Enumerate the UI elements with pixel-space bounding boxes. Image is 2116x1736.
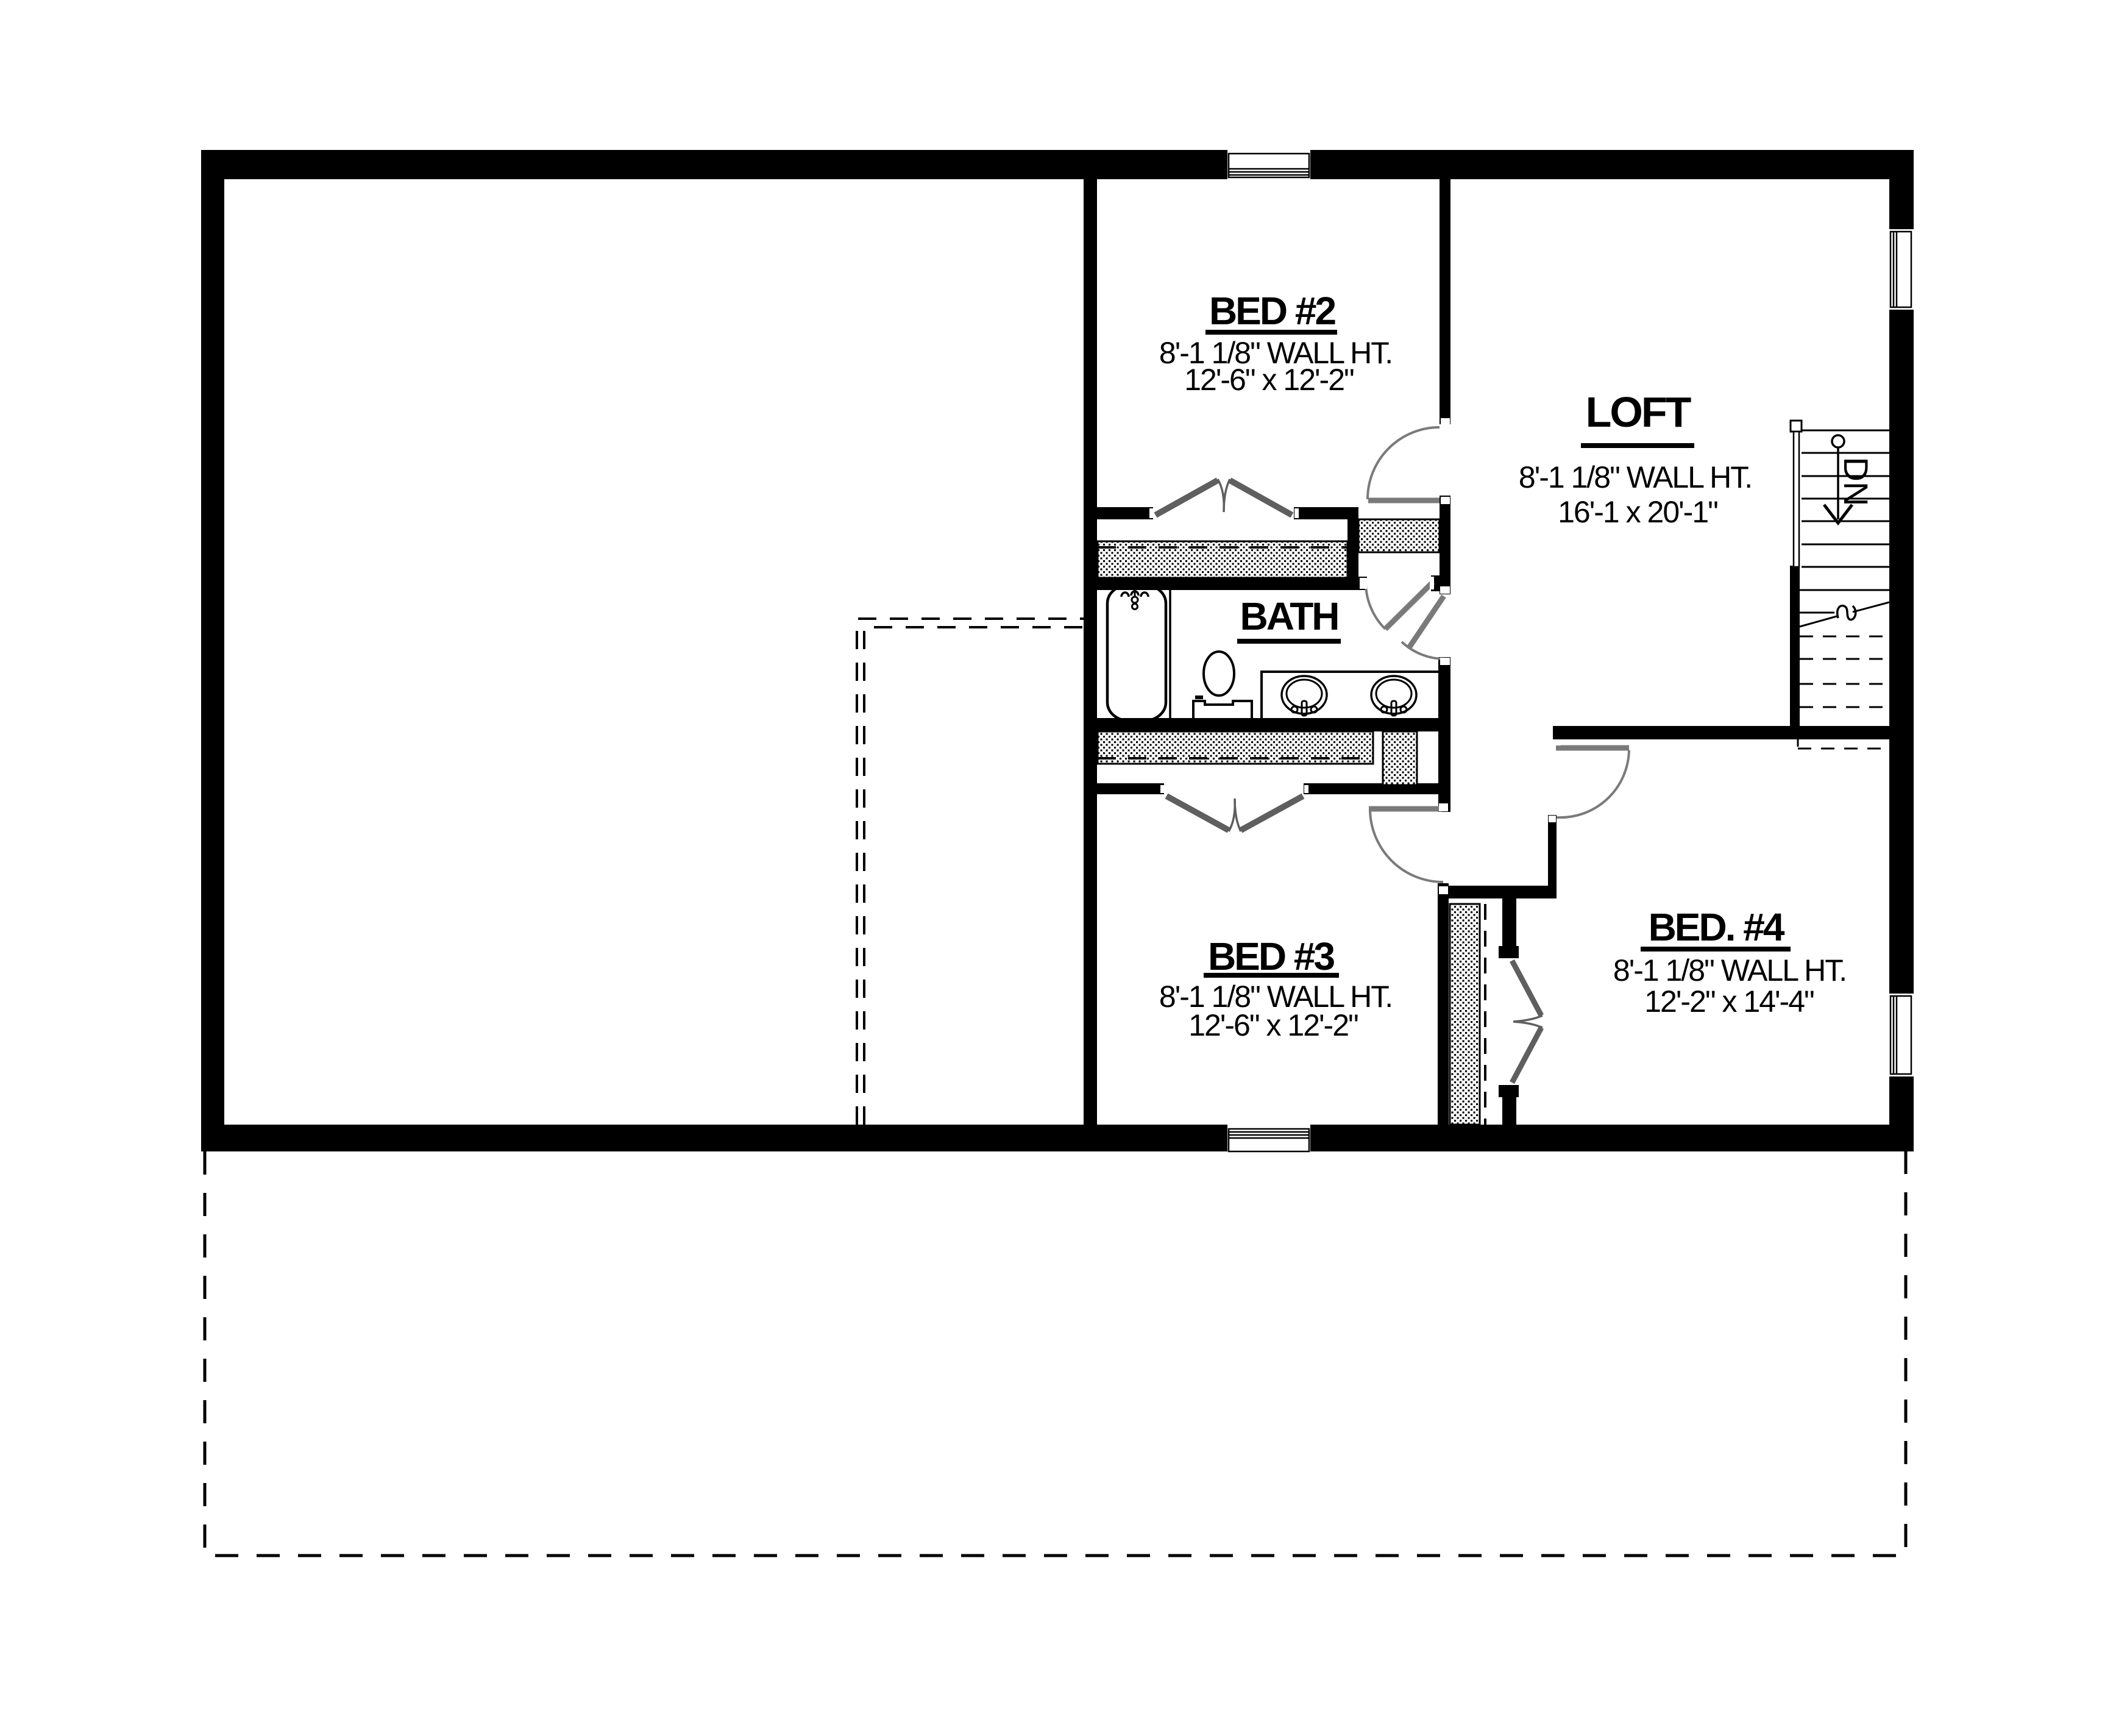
svg-text:16'-1 x 20'-1": 16'-1 x 20'-1" [1558, 495, 1717, 529]
svg-text:BED. #4: BED. #4 [1649, 905, 1785, 949]
svg-text:8'-1 1/8" WALL HT.: 8'-1 1/8" WALL HT. [1613, 953, 1846, 987]
svg-text:BED #2: BED #2 [1209, 289, 1336, 333]
svg-text:DN: DN [1837, 457, 1875, 507]
svg-text:BATH: BATH [1240, 594, 1338, 638]
svg-text:12'-2" x 14'-4": 12'-2" x 14'-4" [1644, 984, 1814, 1019]
svg-text:8'-1 1/8" WALL HT.: 8'-1 1/8" WALL HT. [1519, 460, 1752, 494]
svg-text:LOFT: LOFT [1586, 388, 1691, 436]
svg-text:12'-6" x 12'-2": 12'-6" x 12'-2" [1188, 1008, 1358, 1042]
svg-text:BED #3: BED #3 [1208, 934, 1335, 978]
svg-text:12'-6" x 12'-2": 12'-6" x 12'-2" [1184, 363, 1354, 397]
